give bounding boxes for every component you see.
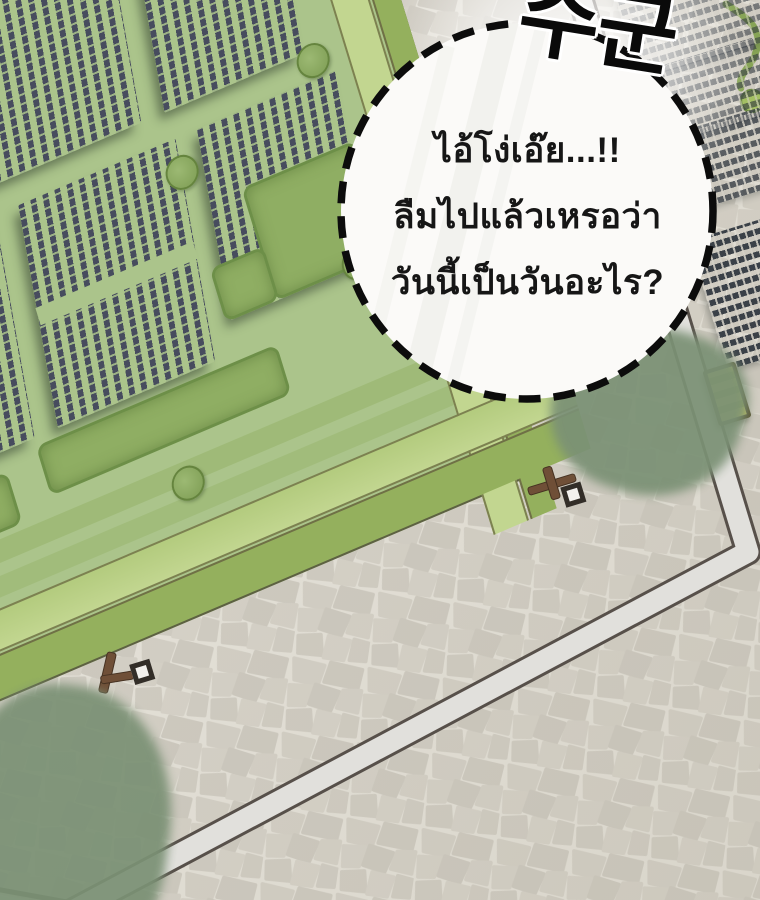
bubble-line-1: ไอ้โง่เอ๊ย...!! bbox=[340, 118, 715, 184]
bubble-line-2: ลืมไปแล้วเหรอว่า bbox=[340, 184, 715, 250]
speech-bubble-text: ไอ้โง่เอ๊ย...!! ลืมไปแล้วเหรอว่า วันนี้เ… bbox=[340, 118, 715, 316]
bubble-line-3: วันนี้เป็นวันอะไร? bbox=[340, 250, 715, 316]
manhwa-panel: ไอ้โง่เอ๊ย...!! ลืมไปแล้วเหรอว่า วันนี้เ… bbox=[0, 0, 760, 900]
